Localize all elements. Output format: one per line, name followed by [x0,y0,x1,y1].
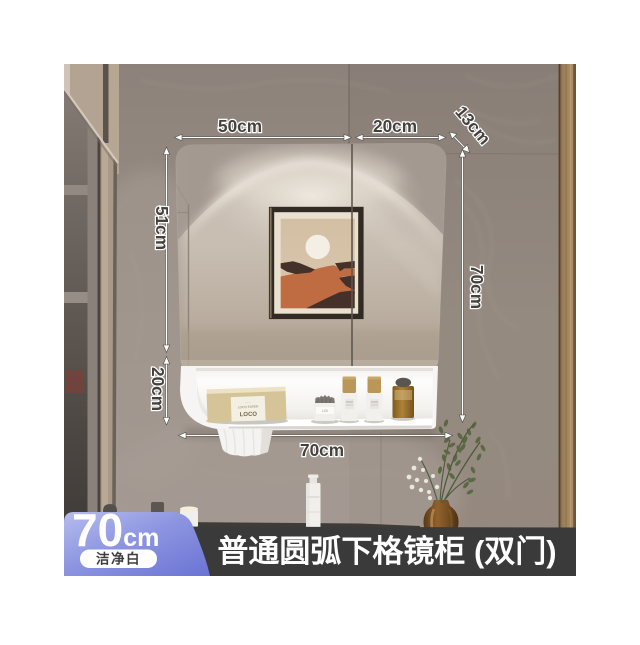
svg-text:20cm: 20cm [373,116,417,136]
svg-text:70cm: 70cm [467,265,487,309]
svg-text:洁净白: 洁净白 [96,551,141,567]
svg-text:LOCO: LOCO [240,412,258,419]
svg-text:70cm: 70cm [300,440,344,460]
svg-text:LOCO PAPER: LOCO PAPER [238,405,259,410]
svg-text:普通圆弧下格镜柜 (双门): 普通圆弧下格镜柜 (双门) [217,534,556,569]
svg-text:LJXI: LJXI [322,409,328,413]
svg-text:51cm: 51cm [152,206,172,250]
svg-text:50cm: 50cm [218,116,262,136]
svg-text:20cm: 20cm [148,367,168,411]
